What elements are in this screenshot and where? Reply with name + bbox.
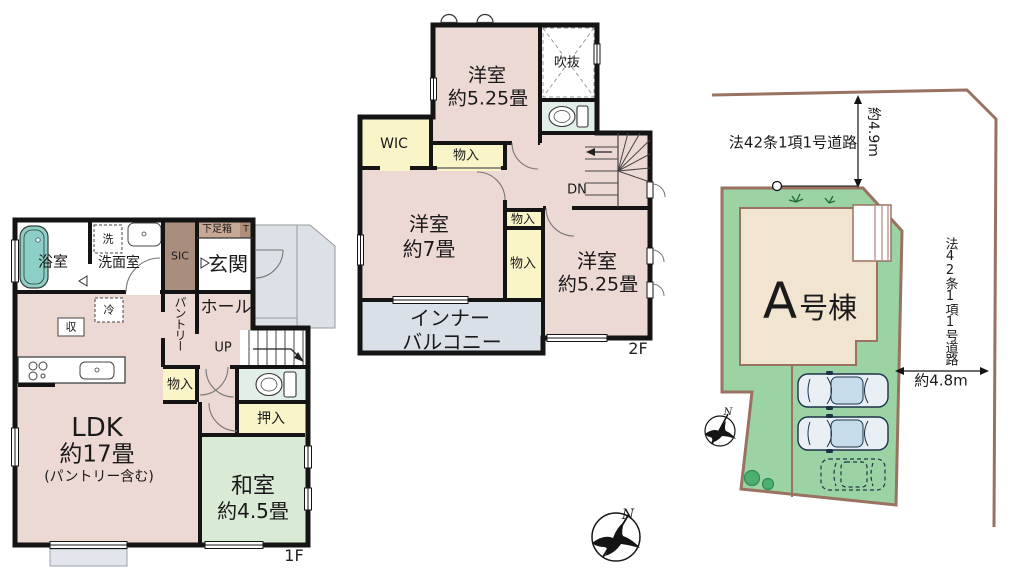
label-monoire-top: 物入 [453,150,479,163]
site-compass [705,414,736,446]
vanity-sink [128,223,161,246]
label-room-right-size: 約5.25畳 [558,276,638,295]
car-1 [798,371,888,410]
label-floor2: 2F [628,341,647,357]
label-washitsu: 和室 [231,476,275,498]
label-compass-main-n: N [622,508,634,522]
tree [745,471,760,486]
label-washer: 洗 [103,234,114,245]
label-building-a-letter: A [763,276,797,326]
toilet-1f [256,372,296,397]
label-void: 吹抜 [554,57,580,70]
label-storage: 収 [66,322,77,333]
vent-window [477,15,493,23]
label-washitsu-size: 約4.5畳 [217,501,289,521]
label-bath: 浴室 [38,255,68,270]
label-balcony-2: バルコニー [402,332,502,352]
label-balcony-1: インナー [410,308,490,328]
label-hall: ホール [201,300,252,317]
label-oshiire: 押入 [257,412,285,426]
label-building-a-suffix: 号棟 [799,294,857,323]
label-monoire-low: 物入 [510,258,536,271]
label-washroom: 洗面室 [98,256,140,270]
label-fridge: 冷 [104,305,115,316]
label-sic: SIC [171,251,189,262]
label-ldk-note: (パントリー含む) [44,470,154,484]
label-shoebox: 下足箱 [202,225,232,235]
label-dn: DN [567,184,587,197]
kitchen-counter [18,357,125,385]
label-room-top-size: 約5.25畳 [448,90,528,109]
label-entrance: 玄関 [208,254,248,274]
label-monoire-mid: 物入 [511,213,535,225]
label-room-mid: 洋室 [409,214,449,234]
car-2 [798,414,888,453]
label-room-mid-size: 約7畳 [403,239,456,259]
label-ldk-size: 約17畳 [59,444,134,467]
label-compass-site-n: N [724,408,733,418]
label-ldk: LDK [71,415,123,441]
terrace [50,549,127,566]
label-wic: WIC [380,137,408,151]
floor2-plan [358,15,666,354]
label-up: UP [214,342,231,355]
label-road-top: 法42条1項1号道路 [729,136,857,151]
label-dim-vertical: 約4.9m [866,107,880,157]
label-building-a: A号棟 [763,276,857,326]
toilet-2f [549,106,588,127]
label-pantry: パントリー [174,296,186,351]
label-t-box: T [243,226,249,235]
vent-window [441,15,457,23]
floorplan-image: 浴室 洗面室 洗 SIC 下足箱 T 玄関 パントリー ホール UP 冷 収 物… [0,0,1013,580]
entrance-porch [255,225,335,328]
marker-circle [773,182,782,191]
approach-steps [853,205,891,261]
label-monoire-1f: 物入 [167,379,193,392]
tree [763,479,774,490]
label-road-right: 法42条1項1号道路 [944,237,957,365]
label-room-top: 洋室 [468,67,506,86]
label-floor1: 1F [284,548,303,564]
label-room-right: 洋室 [577,251,617,271]
label-dim-horizontal: 約4.8m [914,374,967,389]
